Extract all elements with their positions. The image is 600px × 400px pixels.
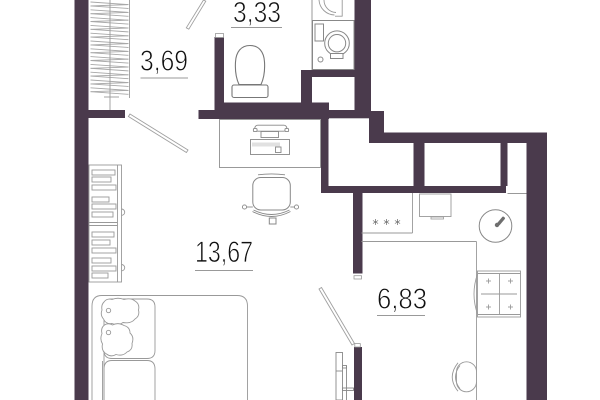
svg-text:6,83: 6,83 (377, 284, 427, 316)
svg-text:3,69: 3,69 (140, 46, 188, 78)
svg-text:3,33: 3,33 (233, 0, 281, 29)
svg-text:13,67: 13,67 (195, 236, 253, 269)
